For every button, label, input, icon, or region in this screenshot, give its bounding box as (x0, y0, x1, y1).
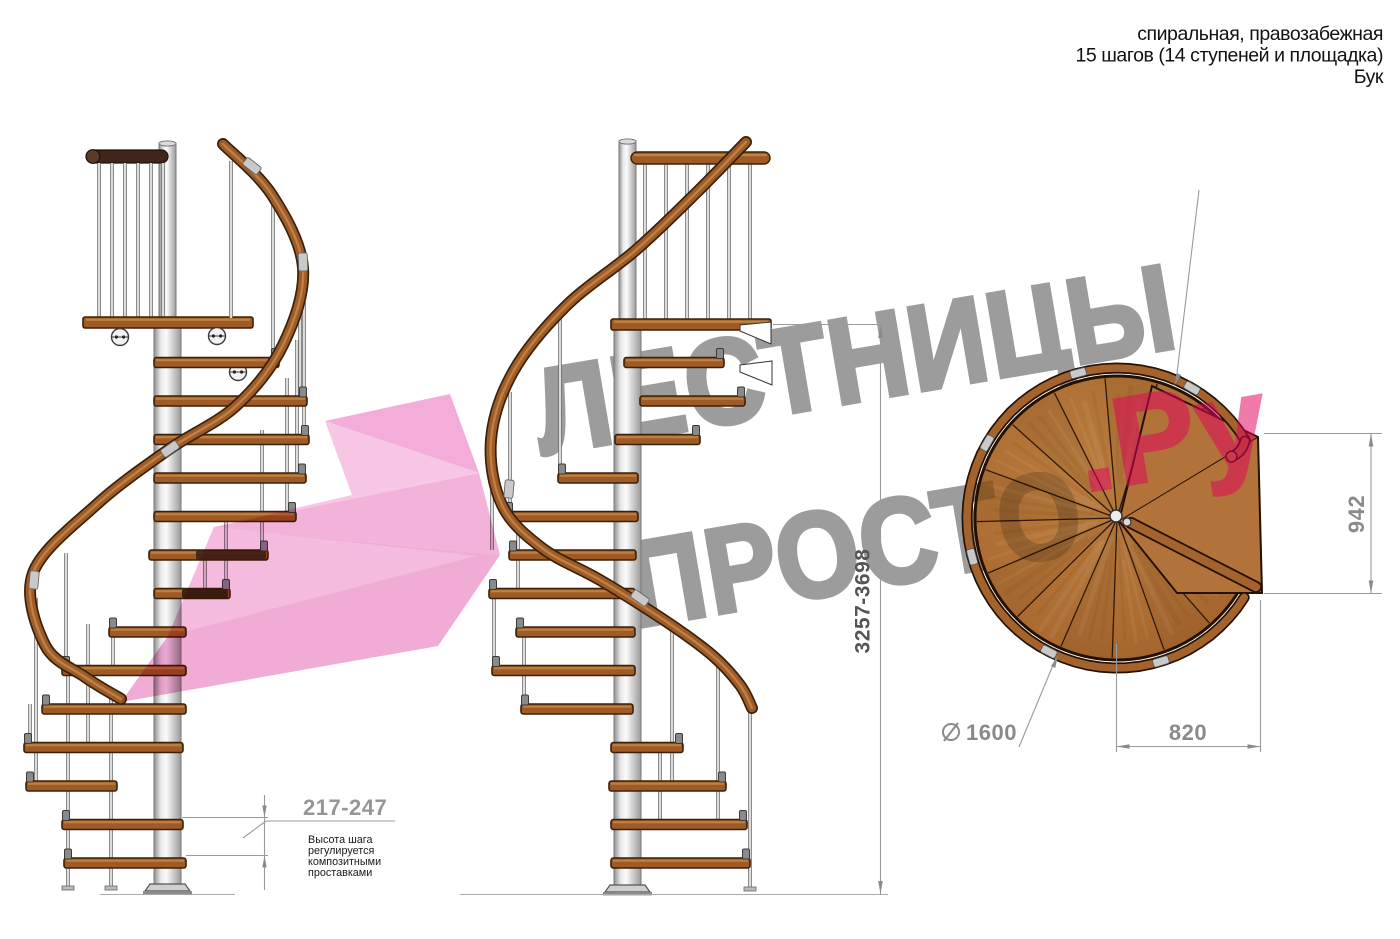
svg-text:1600: 1600 (966, 720, 1017, 745)
svg-text:проставками: проставками (308, 867, 372, 879)
svg-text:спиральная, правозабежная: спиральная, правозабежная (1137, 23, 1383, 45)
svg-text:217-247: 217-247 (303, 795, 387, 820)
svg-text:820: 820 (1169, 720, 1207, 745)
svg-text:3257-3698: 3257-3698 (852, 549, 875, 654)
svg-text:Бук: Бук (1354, 66, 1384, 88)
svg-text:942: 942 (1344, 495, 1369, 533)
svg-text:15 шагов (14 ступеней и площад: 15 шагов (14 ступеней и площадка) (1075, 45, 1383, 67)
